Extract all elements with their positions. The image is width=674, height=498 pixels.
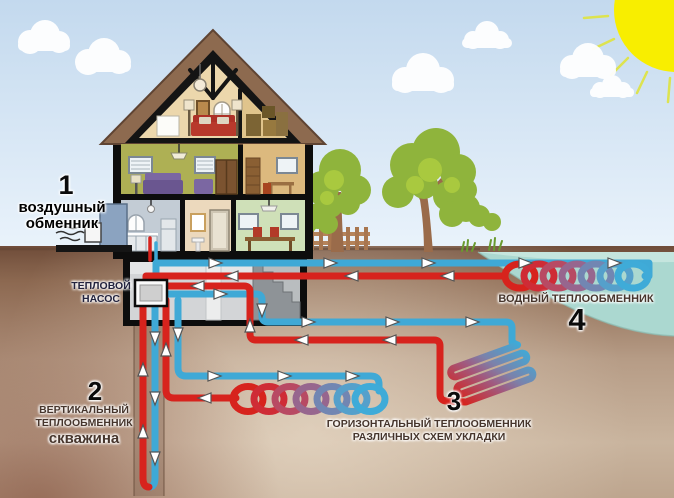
second-floor xyxy=(121,144,305,194)
borehole xyxy=(134,300,164,496)
geothermal-diagram: 1 воздушный обменник ТЕПЛОВОЙ НАСОС 2 ВЕ… xyxy=(0,0,674,498)
heat-pump-unit xyxy=(135,280,167,306)
scene-illustration xyxy=(0,0,674,498)
